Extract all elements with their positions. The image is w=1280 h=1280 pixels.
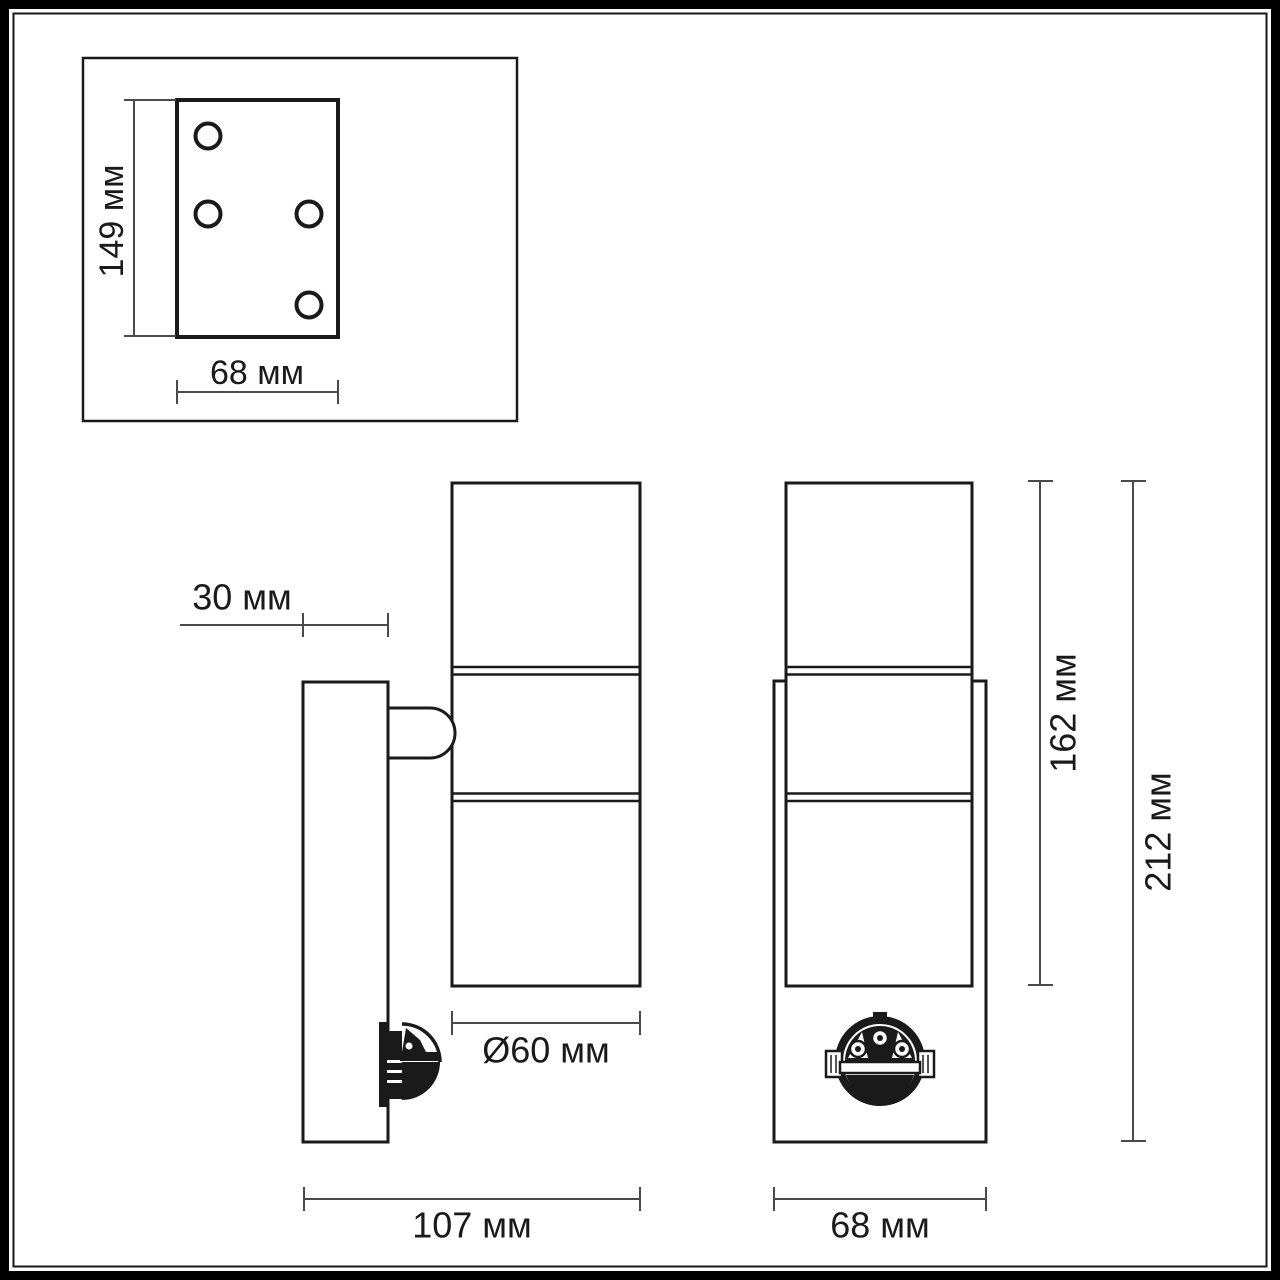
total-depth-label: 107 мм: [412, 1205, 532, 1246]
mounting-hole: [196, 202, 221, 227]
technical-drawing-page: 149 мм 68 мм: [0, 0, 1280, 1280]
mounting-hole: [196, 124, 221, 149]
lamp-cylinder-front: [786, 483, 972, 986]
total-height-label: 212 мм: [1138, 772, 1179, 892]
bracket-depth-label: 30 мм: [192, 577, 292, 618]
lamp-cylinder-side: [452, 483, 640, 986]
wall-plate-side: [303, 682, 388, 1142]
front-width-label: 68 мм: [830, 1205, 930, 1246]
mounting-hole: [297, 202, 322, 227]
pivot-arm: [388, 708, 455, 758]
diameter-label: Ø60 мм: [482, 1030, 610, 1071]
body-height-label: 162 мм: [1043, 653, 1084, 773]
plate-height-label: 149 мм: [93, 165, 131, 278]
mounting-hole: [297, 293, 322, 318]
drawing-canvas: 149 мм 68 мм: [0, 0, 1280, 1280]
plate-width-label: 68 мм: [210, 354, 304, 392]
